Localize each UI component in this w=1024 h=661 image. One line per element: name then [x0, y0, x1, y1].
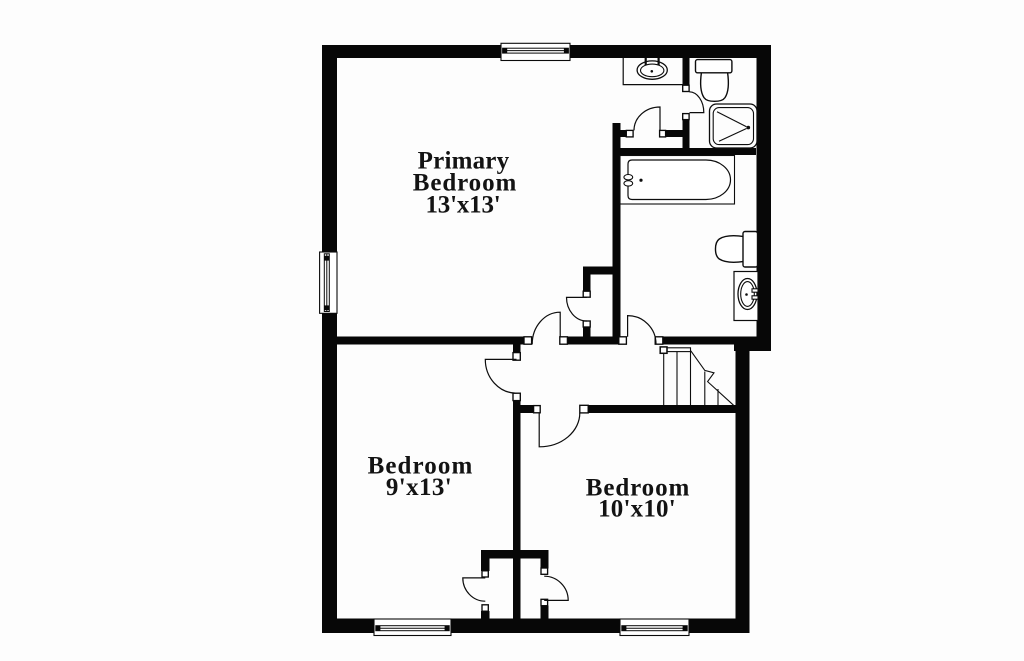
svg-text:9'x13': 9'x13'	[386, 474, 452, 501]
svg-text:13'x13': 13'x13'	[426, 192, 501, 219]
svg-text:10'x10': 10'x10'	[598, 496, 676, 523]
